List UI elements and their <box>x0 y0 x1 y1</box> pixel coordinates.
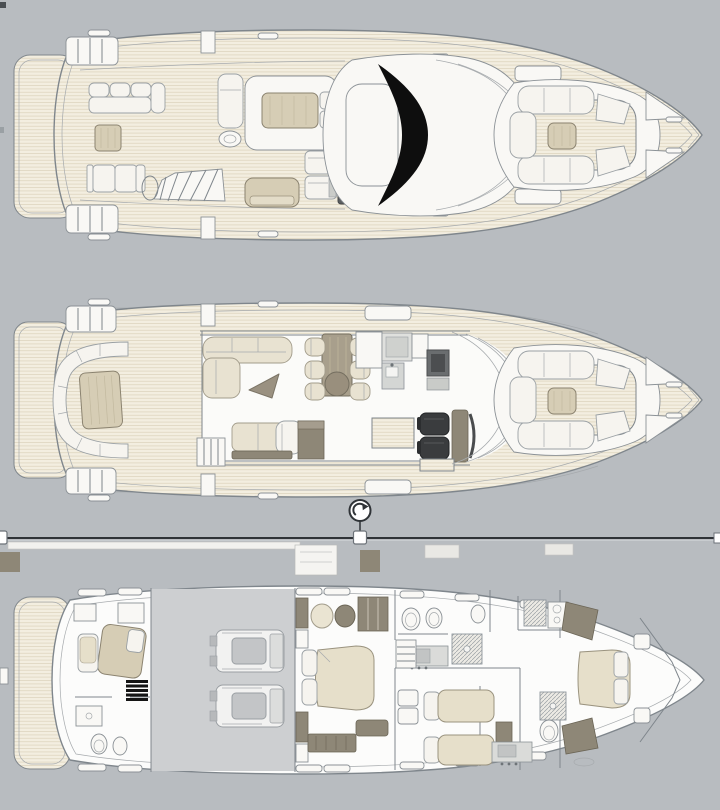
engine <box>210 630 284 672</box>
lower-deck-plan[interactable] <box>0 542 704 774</box>
resize-handle-right[interactable] <box>714 533 720 543</box>
edge-artifact <box>0 127 4 133</box>
yacht-deck-plans <box>0 0 720 810</box>
edge-artifact <box>0 2 6 8</box>
flybridge-deck-plan[interactable] <box>14 30 702 240</box>
cleat <box>88 30 110 36</box>
engine-room-floor <box>151 589 295 771</box>
flybridge-sofa <box>89 83 165 113</box>
resize-handle-left[interactable] <box>0 531 7 544</box>
engine <box>210 685 284 727</box>
main-deck-plan[interactable] <box>14 299 702 501</box>
cropped-image-sliver <box>0 542 573 575</box>
salon-sofa-2 <box>232 421 302 459</box>
salon-cabinet <box>298 421 324 459</box>
dining-table <box>322 334 352 396</box>
stairs-down <box>197 438 225 466</box>
sunroof <box>346 84 398 186</box>
lounger <box>218 74 243 128</box>
master-bed <box>316 646 375 710</box>
resize-handle-center[interactable] <box>354 531 367 544</box>
rotate-handle[interactable] <box>350 500 371 521</box>
stairs-landing <box>396 640 416 668</box>
cockpit-table <box>79 371 123 430</box>
helm-console <box>452 410 468 462</box>
yacht-deck-plans-canvas <box>0 0 720 810</box>
day-head <box>524 600 568 628</box>
flybridge-bench <box>87 165 145 192</box>
